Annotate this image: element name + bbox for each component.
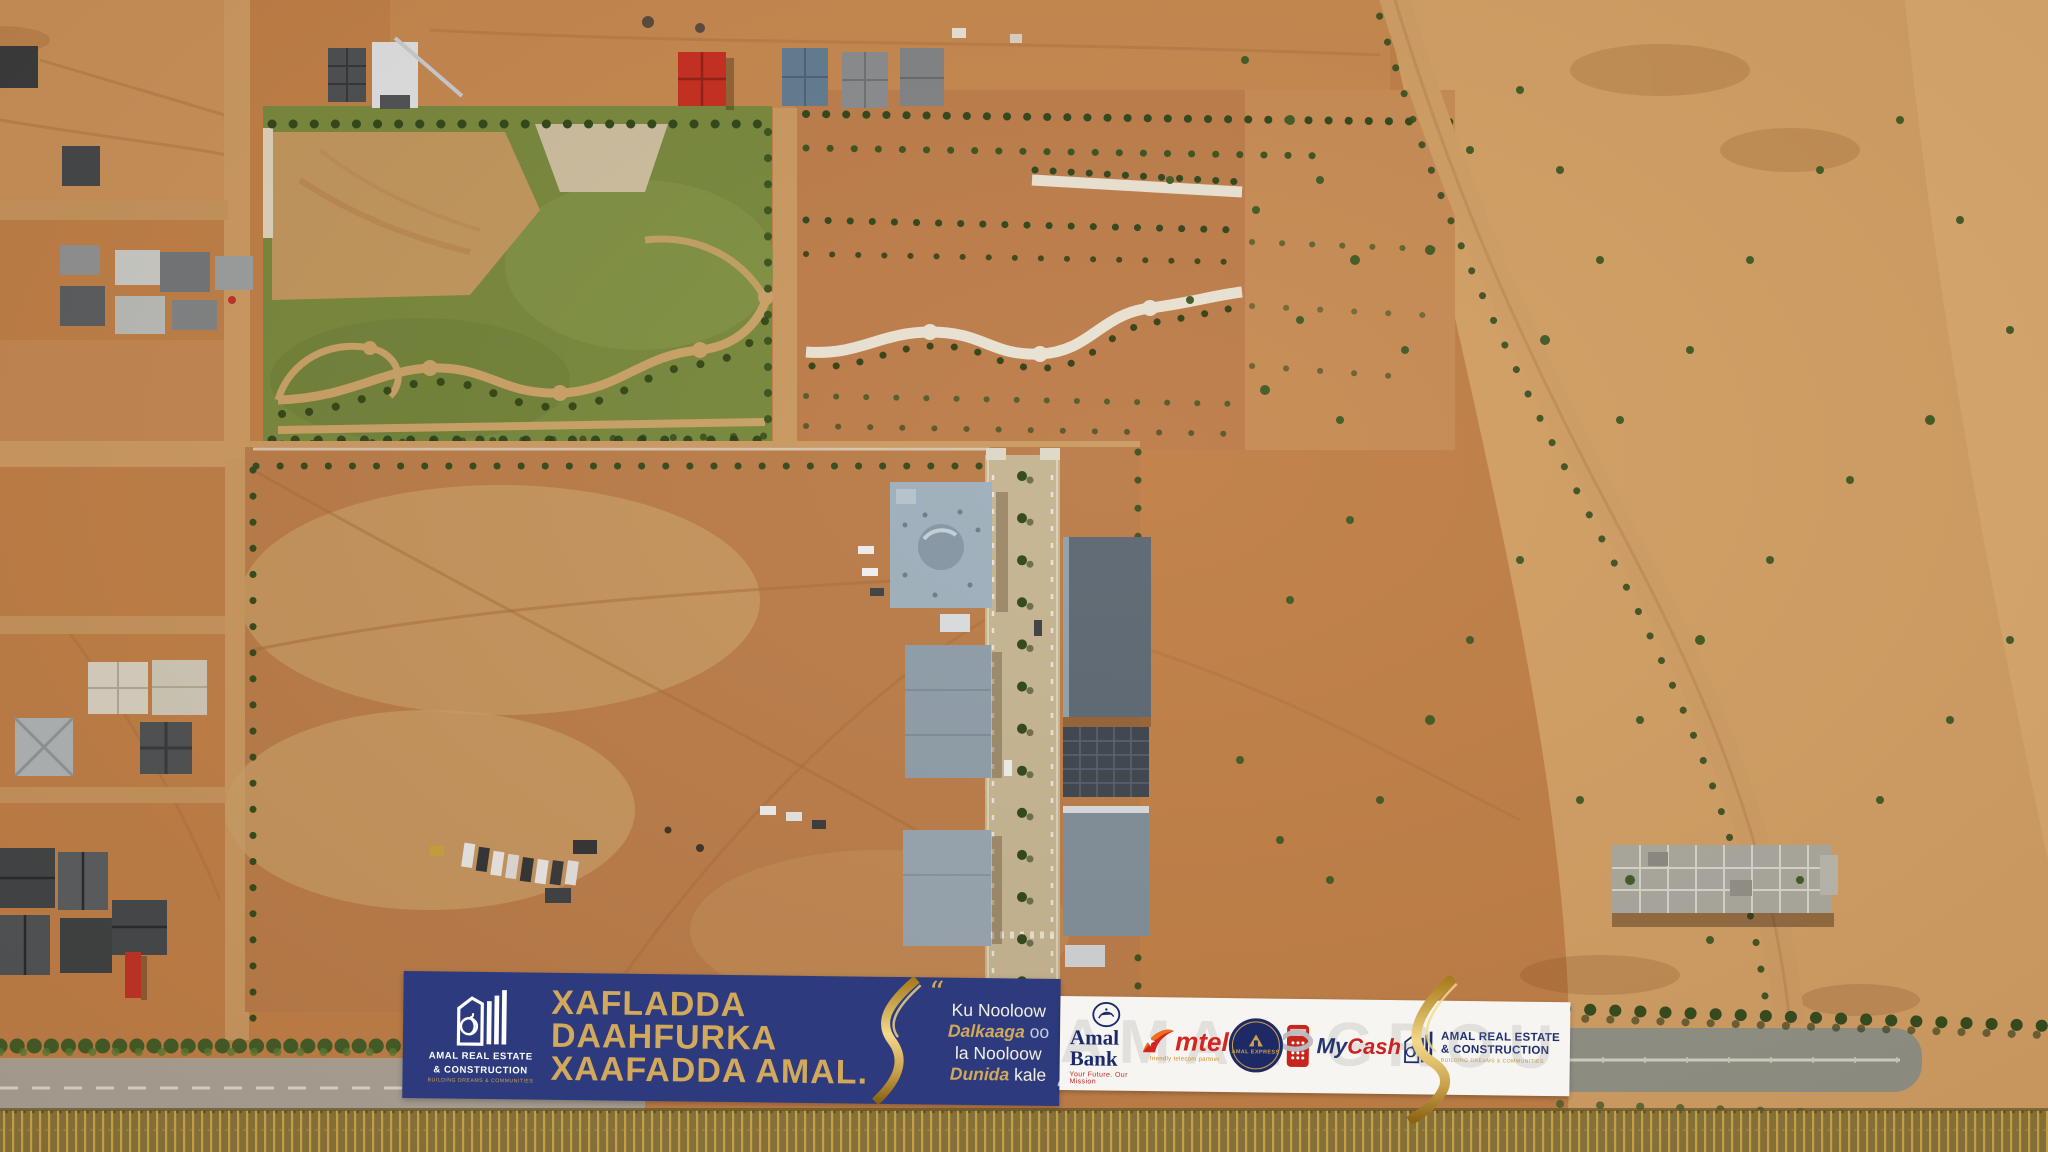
- amtel-swoosh-icon: [1141, 1026, 1175, 1054]
- warehouse-row-east: [1063, 537, 1151, 967]
- developer-logo-name-line1: AMAL REAL ESTATE: [429, 1051, 533, 1063]
- sponsor-mycash: MyCash: [1282, 1022, 1401, 1069]
- plantation: [795, 90, 1455, 450]
- quote-line2: Dalkaaga oo: [922, 1021, 1074, 1044]
- quote-line4: Dunida kale: [922, 1063, 1074, 1086]
- quote-line1: Ku Nooloow: [923, 999, 1075, 1022]
- amal-bank-tagline: Your Future. Our Mission: [1069, 1071, 1140, 1086]
- amal-bank-name: Amal Bank: [1070, 1027, 1142, 1070]
- long-building-under-construction: [1612, 845, 1838, 927]
- aerial-photo: AMAL REAL ESTATE & CONSTRUCTION BUILDING…: [0, 0, 2048, 1152]
- amal-bank-calligraphy-icon: [1090, 1001, 1122, 1027]
- amal-express-badge: AMAL EXPRESS: [1228, 1018, 1283, 1073]
- close-quote-icon: “: [922, 1085, 1070, 1097]
- arec-tagline: BUILDING DREAMS & COMMUNITIES: [1441, 1057, 1560, 1064]
- amtel-name: mtel: [1175, 1031, 1229, 1055]
- amtel-tagline: friendly telecom partner: [1150, 1056, 1220, 1063]
- developer-logo: AMAL REAL ESTATE & CONSTRUCTION BUILDING…: [424, 986, 537, 1084]
- event-banner: AMAL REAL ESTATE & CONSTRUCTION BUILDING…: [402, 971, 1570, 1112]
- sponsor-amal-real-estate: AMAL REAL ESTATE & CONSTRUCTION BUILDING…: [1401, 1028, 1560, 1068]
- mycash-phone-icon: [1282, 1022, 1313, 1068]
- banner-navy-panel: AMAL REAL ESTATE & CONSTRUCTION BUILDING…: [402, 971, 1061, 1106]
- gold-ribbon-icon: [870, 977, 924, 1105]
- sponsor-amtel: mtel friendly telecom partner: [1141, 1026, 1229, 1063]
- quote-line3: la Nooloow: [922, 1042, 1074, 1065]
- amal-express-name: AMAL EXPRESS: [1231, 1049, 1279, 1056]
- sponsors-panel: AMAL GROUP Amal Bank Your Future. Our Mi…: [1059, 996, 1570, 1096]
- mycash-name: MyCash: [1316, 1035, 1401, 1058]
- developer-logo-name-line2: & CONSTRUCTION: [433, 1065, 528, 1077]
- headline-line3: XAAFADDA AMAL.: [550, 1053, 868, 1090]
- amal-express-emblem-icon: [1246, 1034, 1266, 1048]
- developer-logo-tagline: BUILDING DREAMS & COMMUNITIES: [427, 1077, 533, 1084]
- arec-name-line2: & CONSTRUCTION: [1441, 1044, 1560, 1058]
- sponsor-amal-bank: Amal Bank Your Future. Our Mission: [1069, 1001, 1141, 1086]
- sponsor-amal-express: AMAL EXPRESS: [1228, 1018, 1283, 1073]
- amal-real-estate-logo-icon: [451, 987, 512, 1050]
- banner-quote: “ Ku Nooloow Dalkaaga oo la Nooloow Duni…: [922, 987, 1075, 1096]
- banner-headline: XAFLADDA DAAHFURKA XAAFADDA AMAL.: [550, 986, 869, 1090]
- park: [263, 106, 775, 452]
- amal-real-estate-logo-icon-navy: [1401, 1028, 1435, 1066]
